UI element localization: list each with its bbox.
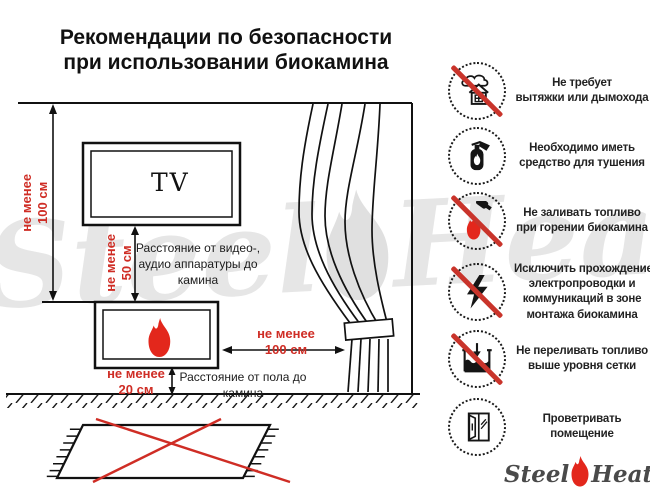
page-title: Рекомендации по безопасности при использ… bbox=[0, 26, 452, 76]
rule-text: Исключить прохождение электропроводки и … bbox=[514, 262, 650, 323]
logo-heat: Heat bbox=[591, 461, 650, 488]
dim-label-100cm-vertical: не менее 100 см bbox=[19, 143, 51, 263]
logo-flame-icon bbox=[568, 456, 592, 488]
infographic: Steel Heat Рекомендации по безопасности … bbox=[0, 0, 650, 502]
rule-badge bbox=[448, 62, 506, 120]
page-title-line1: Рекомендации по безопасности bbox=[0, 26, 452, 51]
rule-text: Не требует вытяжки или дымохода bbox=[514, 76, 650, 106]
dim-desc-floor-to-fireplace: Расстояние от пола до камина bbox=[168, 369, 318, 401]
dim-label-100cm-horizontal: не менее 100 см bbox=[240, 326, 332, 358]
curtain-tie bbox=[344, 319, 393, 340]
tv-label: TV bbox=[151, 168, 190, 197]
rule-ventilate: Проветривать помещение bbox=[448, 398, 650, 456]
rule-text: Необходимо иметь средство для тушения bbox=[514, 141, 650, 171]
rule-badge bbox=[448, 263, 506, 321]
ventilate-icon bbox=[457, 407, 497, 447]
page-title-line2: при использовании биокамина bbox=[0, 51, 452, 76]
rule-text: Проветривать помещение bbox=[514, 412, 650, 442]
rule-no-refuel-while-burning: Не заливать топливо при горении биокамин… bbox=[448, 192, 650, 250]
logo-steel: Steel bbox=[504, 461, 569, 488]
rule-no-chimney: Не требует вытяжки или дымохода bbox=[448, 62, 650, 120]
brand-logo: Steel Heat bbox=[504, 456, 650, 492]
rule-text: Не переливать топливо выше уровня сетки bbox=[514, 344, 650, 374]
rule-badge bbox=[448, 192, 506, 250]
dim-desc-tv-to-fireplace: Расстояние от видео-, аудио аппаратуры д… bbox=[132, 240, 264, 289]
rule-no-overfill: Не переливать топливо выше уровня сетки bbox=[448, 330, 650, 388]
rule-extinguisher: Необходимо иметь средство для тушения bbox=[448, 127, 650, 185]
rug bbox=[47, 419, 290, 482]
rule-badge bbox=[448, 127, 506, 185]
rule-badge bbox=[448, 398, 506, 456]
rule-text: Не заливать топливо при горении биокамин… bbox=[514, 206, 650, 236]
rule-badge bbox=[448, 330, 506, 388]
rule-no-electrical-wiring: Исключить прохождение электропроводки и … bbox=[448, 262, 650, 323]
dim-label-50cm-vertical: не менее 50 см bbox=[103, 208, 135, 318]
extinguisher-icon bbox=[457, 136, 497, 176]
